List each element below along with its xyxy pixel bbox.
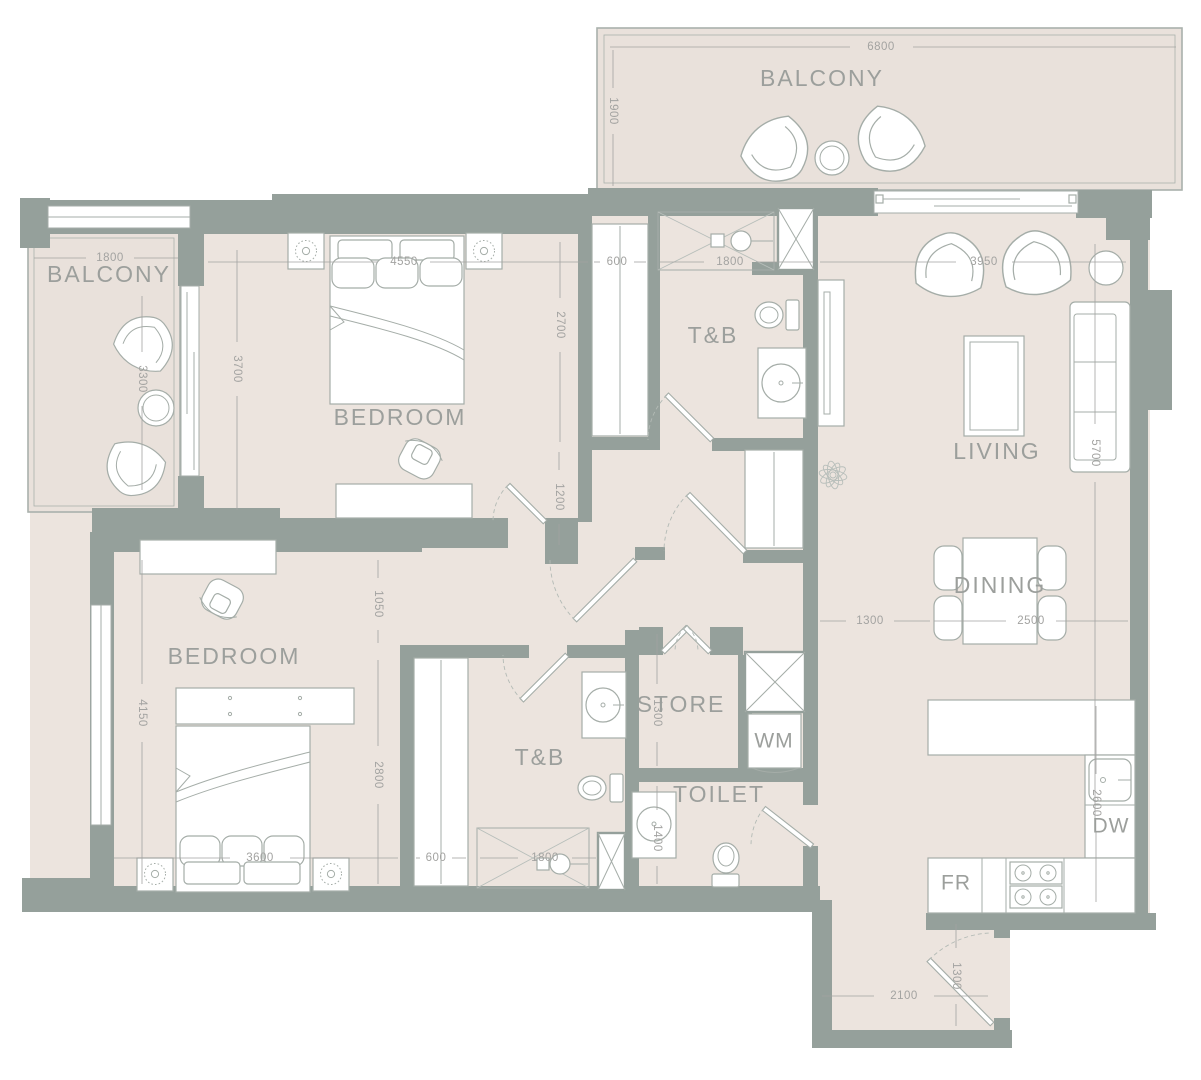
room-label-balcony-left: BALCONY [47,261,171,287]
room-label-tb1: T&B [688,322,739,348]
sliding-door-bedroom1-balcony [181,286,199,476]
dim-entry-width: 2100 [890,990,918,1002]
room-label-balcony-top: BALCONY [760,65,884,91]
dim-tb1-width: 1800 [716,256,744,268]
dim-entry-depth: 1300 [950,962,962,990]
shaft-store [745,652,805,712]
toilet-room-wc [712,843,739,887]
room-label-living: LIVING [953,438,1040,464]
dining-chair [934,596,962,640]
dim-bedroom1-width: 4550 [390,256,418,268]
coffee-table [964,336,1024,436]
room-label-bedroom1: BEDROOM [334,404,467,430]
room-label-store: STORE [637,691,726,717]
dim-bedroom2-width: 3600 [246,852,274,864]
dim-kitchen-depth: 2600 [1090,789,1102,817]
tb2-toilet [578,774,623,802]
dim-bedroom2-depth: 4150 [136,699,148,727]
dim-living-depth: 5700 [1089,439,1101,467]
dim-wardrobe2-width: 600 [426,852,447,864]
room-label-wm: WM [754,730,793,753]
kitchen-counter-top [928,700,1135,755]
side-table [1089,251,1123,285]
room-label-fr: FR [941,872,971,895]
room-label-toilet: TOILET [673,781,765,807]
linen-closet-hall [745,450,803,548]
room-label-dining: DINING [954,572,1047,598]
tv-console [818,280,844,426]
window-bedroom2-left [91,605,111,825]
duct-tb2 [598,833,625,890]
window-top-left [48,206,190,228]
dresser [176,688,354,724]
dim-balcony-left-depth: 3300 [136,365,148,393]
room-label-tb2: T&B [515,744,566,770]
dim-dining-offset: 1300 [856,615,884,627]
dim-wardrobe1-depth: 600 [607,256,628,268]
dim-hall-width: 1200 [553,483,565,511]
tb1-toilet [755,300,799,330]
tb2-vanity [582,672,626,738]
floor-plan: 6800 1900 1800 3300 3700 4550 2700 1200 … [0,0,1201,1080]
shaft-tb1 [778,208,814,270]
dim-bedroom2-nook: 1050 [372,590,384,618]
dim-bedroom1-balcony-side: 3700 [231,355,243,383]
dim-balcony-top-width: 6800 [867,41,895,53]
desk [336,484,472,518]
dim-bedroom2-inner: 2800 [372,761,384,789]
dim-bedroom1-depth: 2700 [554,311,566,339]
floor-plan-page: 6800 1900 1800 3300 3700 4550 2700 1200 … [0,0,1201,1080]
tb1-vanity [758,348,806,418]
room-label-dw: DW [1093,815,1130,838]
room-label-bedroom2: BEDROOM [168,643,301,669]
dim-balcony-top-depth: 1900 [607,97,619,125]
dim-dining-width: 2500 [1017,615,1045,627]
sliding-door-living-balcony [874,191,1078,213]
dim-toilet-depth: 1400 [651,824,663,852]
dim-tb2-width: 1800 [531,852,559,864]
desk [140,540,276,574]
dim-living-width: 3950 [970,256,998,268]
